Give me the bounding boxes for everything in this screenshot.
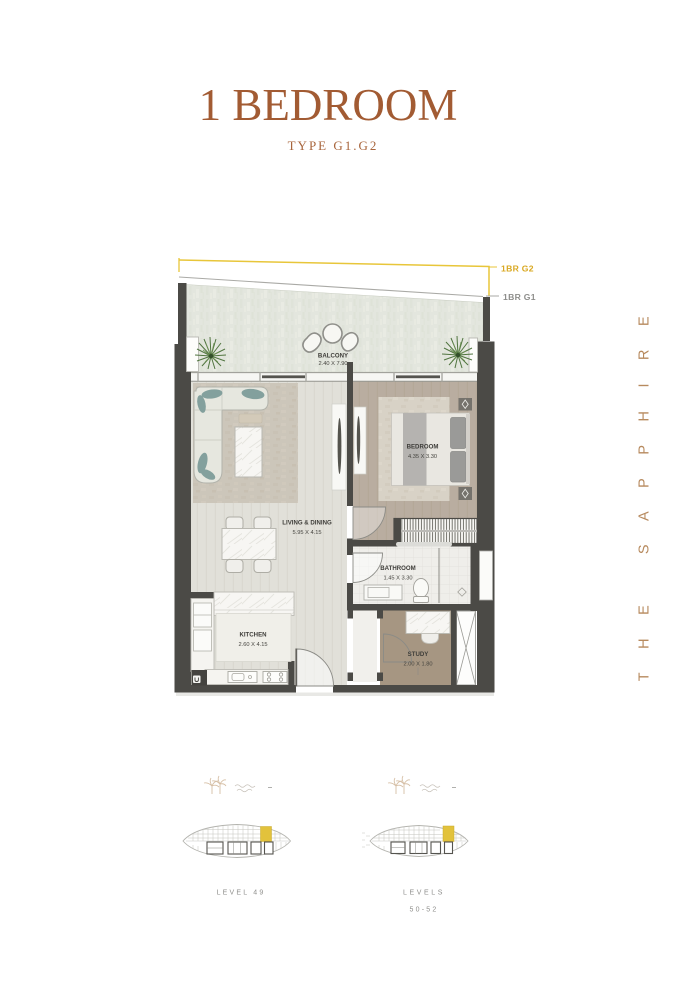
svg-text:BALCONY: BALCONY bbox=[318, 353, 348, 360]
svg-text:BATHROOM: BATHROOM bbox=[380, 565, 415, 572]
svg-text:4.35 X 3.30: 4.35 X 3.30 bbox=[408, 454, 437, 460]
svg-text:LIVING & DINING: LIVING & DINING bbox=[282, 520, 332, 527]
svg-text:BEDROOM: BEDROOM bbox=[407, 444, 439, 451]
svg-text:50-52: 50-52 bbox=[410, 907, 439, 914]
svg-text:1BR G1: 1BR G1 bbox=[503, 292, 536, 302]
svg-text:LEVEL 49: LEVEL 49 bbox=[217, 890, 266, 897]
svg-text:THE SAPPHIRE: THE SAPPHIRE bbox=[637, 293, 653, 681]
svg-text:1 BEDROOM: 1 BEDROOM bbox=[199, 80, 458, 130]
svg-text:KITCHEN: KITCHEN bbox=[239, 632, 266, 639]
svg-text:1.45 X 3.30: 1.45 X 3.30 bbox=[383, 576, 412, 582]
svg-text:2.00 X 1.80: 2.00 X 1.80 bbox=[403, 662, 432, 668]
svg-text:2.40 X 7.90: 2.40 X 7.90 bbox=[318, 361, 347, 367]
svg-text:LEVELS: LEVELS bbox=[403, 890, 445, 897]
svg-text:STUDY: STUDY bbox=[408, 651, 429, 658]
svg-text:TYPE G1.G2: TYPE G1.G2 bbox=[288, 138, 379, 153]
svg-text:5.95 X 4.15: 5.95 X 4.15 bbox=[292, 530, 321, 536]
svg-text:2.60 X 4.15: 2.60 X 4.15 bbox=[238, 642, 267, 648]
svg-text:1BR G2: 1BR G2 bbox=[501, 264, 534, 274]
